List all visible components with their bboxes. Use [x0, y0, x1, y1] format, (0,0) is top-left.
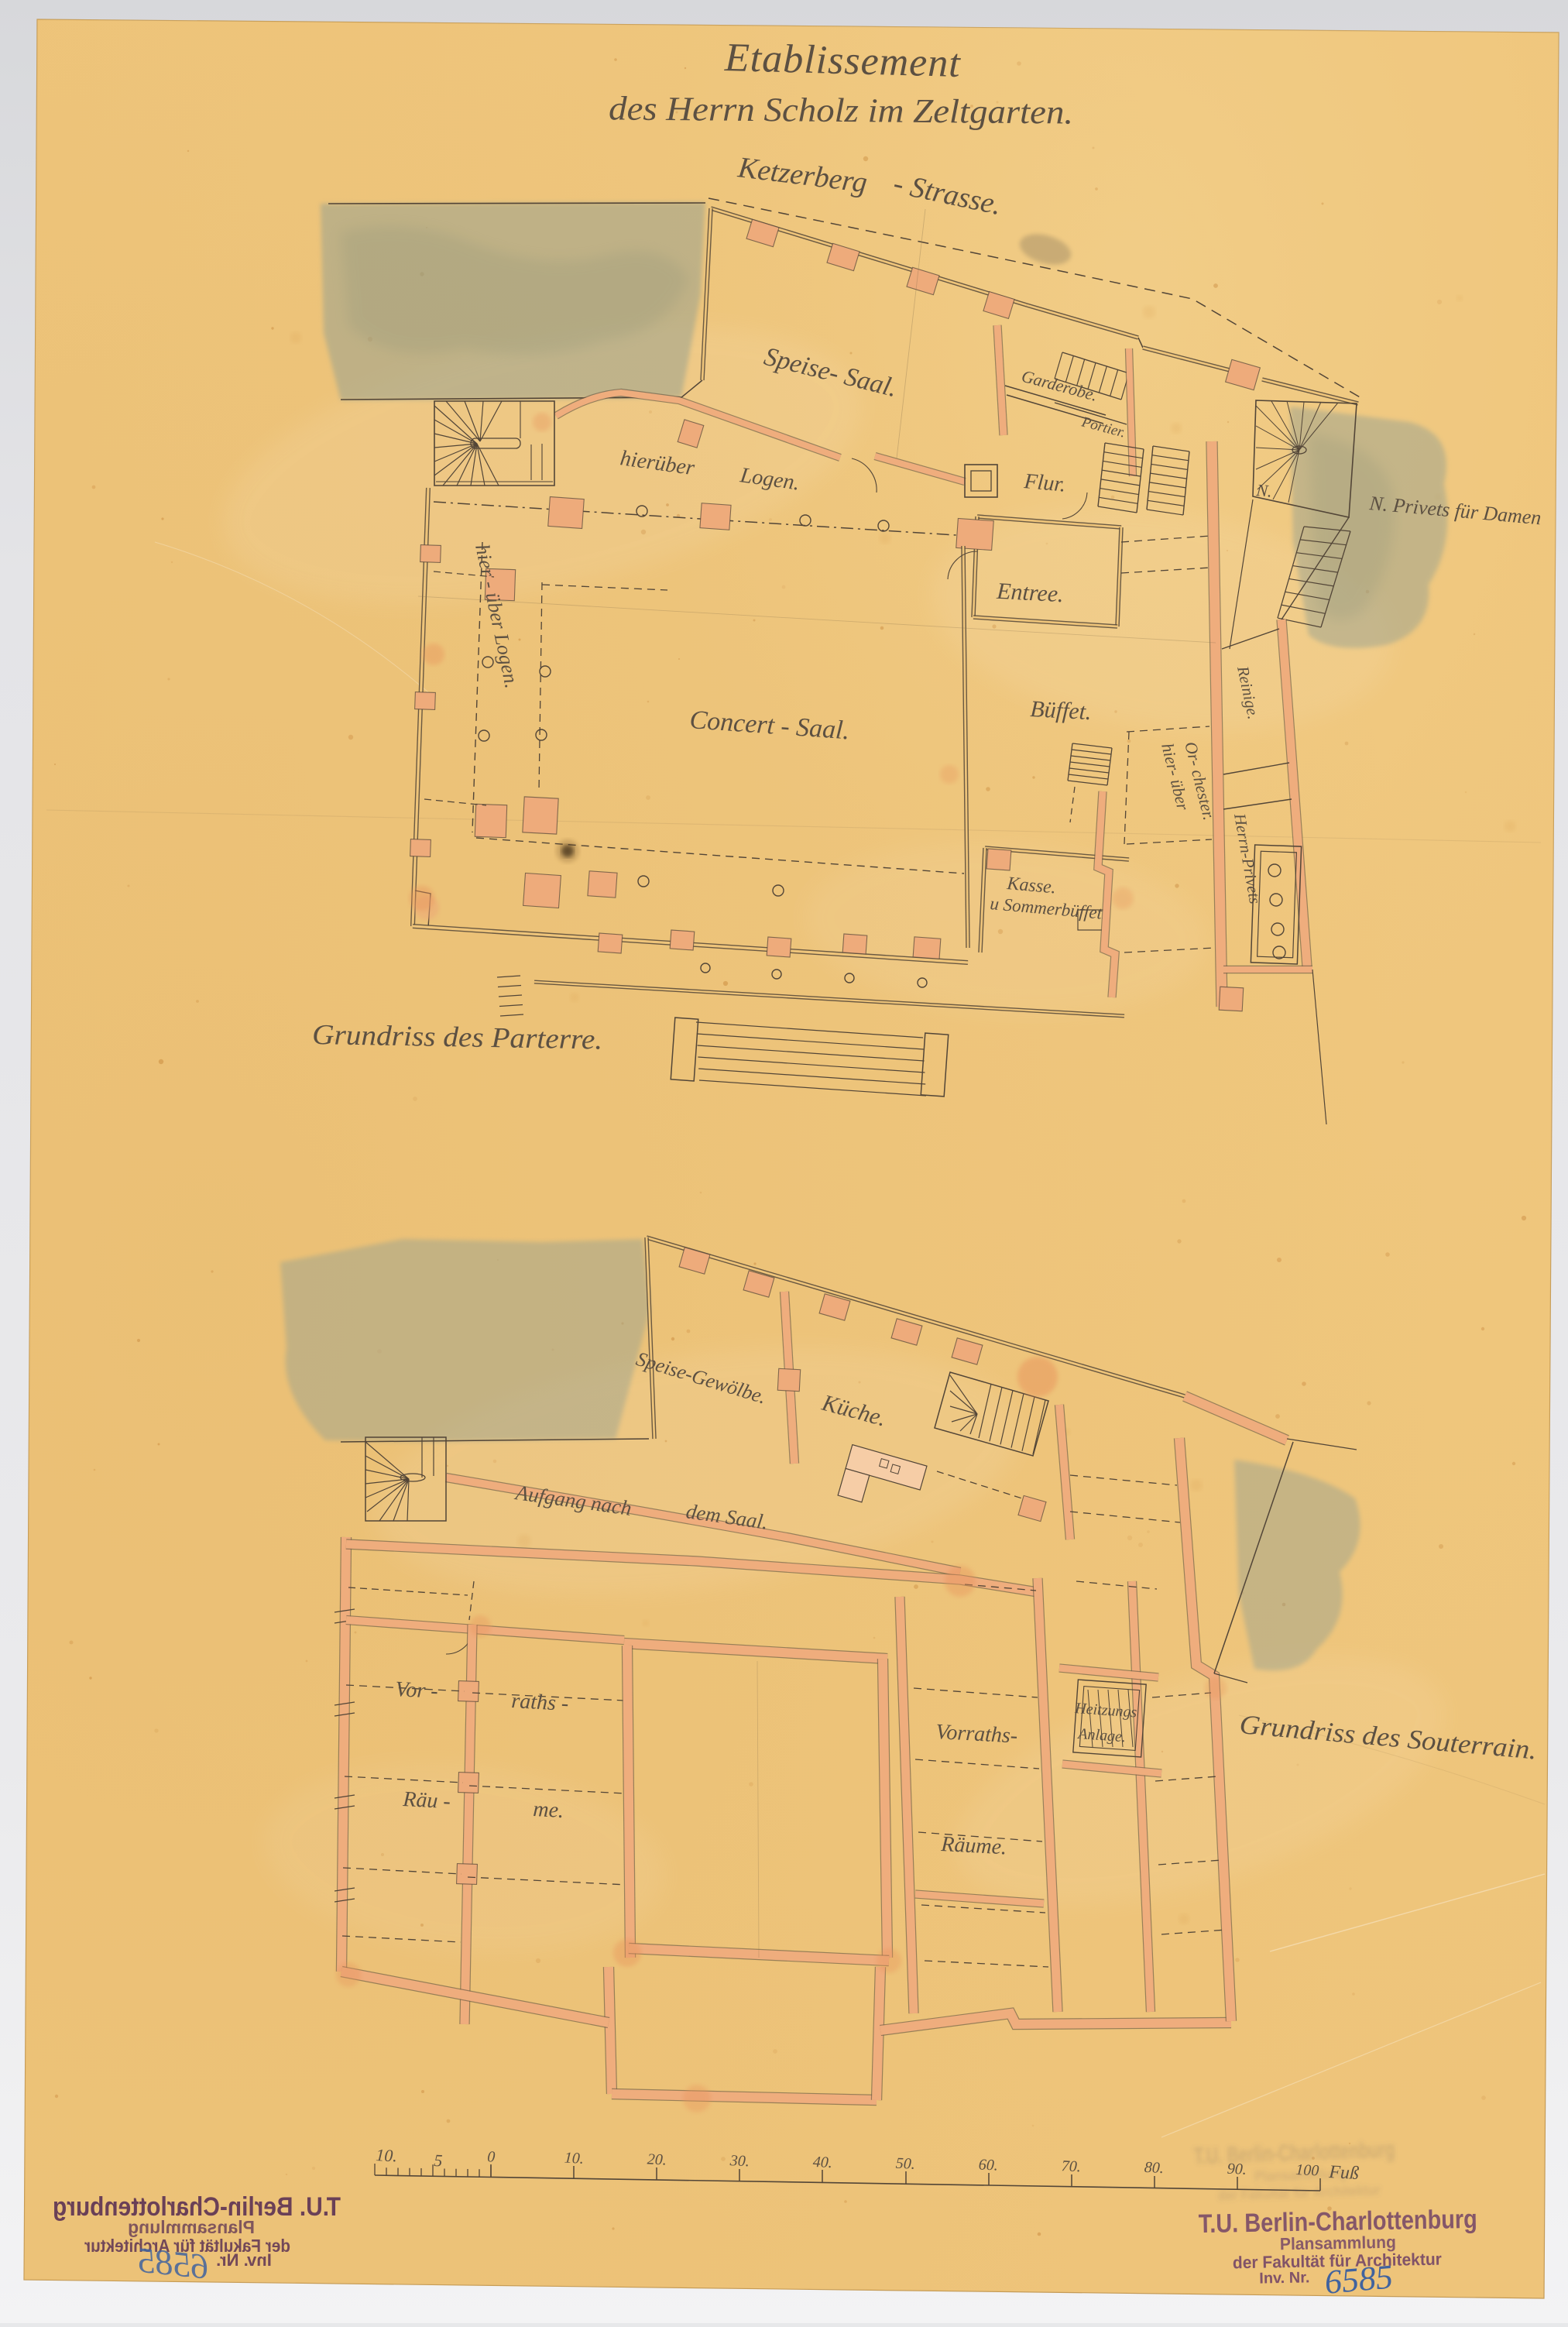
svg-text:raths -: raths - [511, 1689, 569, 1716]
svg-text:me.: me. [533, 1797, 564, 1823]
svg-text:Flur.: Flur. [1022, 469, 1066, 497]
svg-text:Entree.: Entree. [996, 578, 1065, 608]
svg-text:80.: 80. [1144, 2159, 1164, 2177]
svg-text:Inv. Nr.: Inv. Nr. [216, 2250, 272, 2270]
svg-text:des Herrn Scholz im Zeltgarten: des Herrn Scholz im Zeltgarten. [609, 89, 1073, 131]
svg-text:Räu -: Räu - [402, 1787, 451, 1814]
svg-text:Inv. Nr.: Inv. Nr. [1259, 2269, 1310, 2287]
svg-text:Räume.: Räume. [940, 1832, 1007, 1859]
svg-text:5: 5 [434, 2150, 443, 2171]
svg-text:30.: 30. [729, 2152, 750, 2170]
svg-text:Vorraths-: Vorraths- [935, 1720, 1018, 1748]
svg-text:6585: 6585 [1323, 2257, 1395, 2301]
svg-text:10.: 10. [376, 2145, 398, 2165]
svg-text:20.: 20. [647, 2150, 667, 2168]
svg-text:70.: 70. [1061, 2157, 1081, 2175]
svg-text:Plansammlung: Plansammlung [128, 2217, 255, 2237]
svg-text:Anlage.: Anlage. [1076, 1725, 1127, 1745]
svg-text:0: 0 [487, 2148, 496, 2165]
svg-text:Vor -: Vor - [395, 1677, 439, 1704]
svg-text:6585: 6585 [136, 2239, 211, 2286]
svg-text:60.: 60. [978, 2156, 998, 2174]
svg-text:N.: N. [1255, 480, 1273, 501]
svg-text:Grundriss des Parterre.: Grundriss des Parterre. [312, 1019, 603, 1056]
svg-text:Plansammlung: Plansammlung [1254, 2165, 1347, 2185]
svg-text:50.: 50. [895, 2155, 915, 2173]
svg-text:10.: 10. [564, 2150, 584, 2167]
svg-text:40.: 40. [812, 2154, 832, 2171]
svg-text:Etablissement: Etablissement [723, 36, 962, 86]
svg-text:Büffet.: Büffet. [1030, 696, 1093, 725]
